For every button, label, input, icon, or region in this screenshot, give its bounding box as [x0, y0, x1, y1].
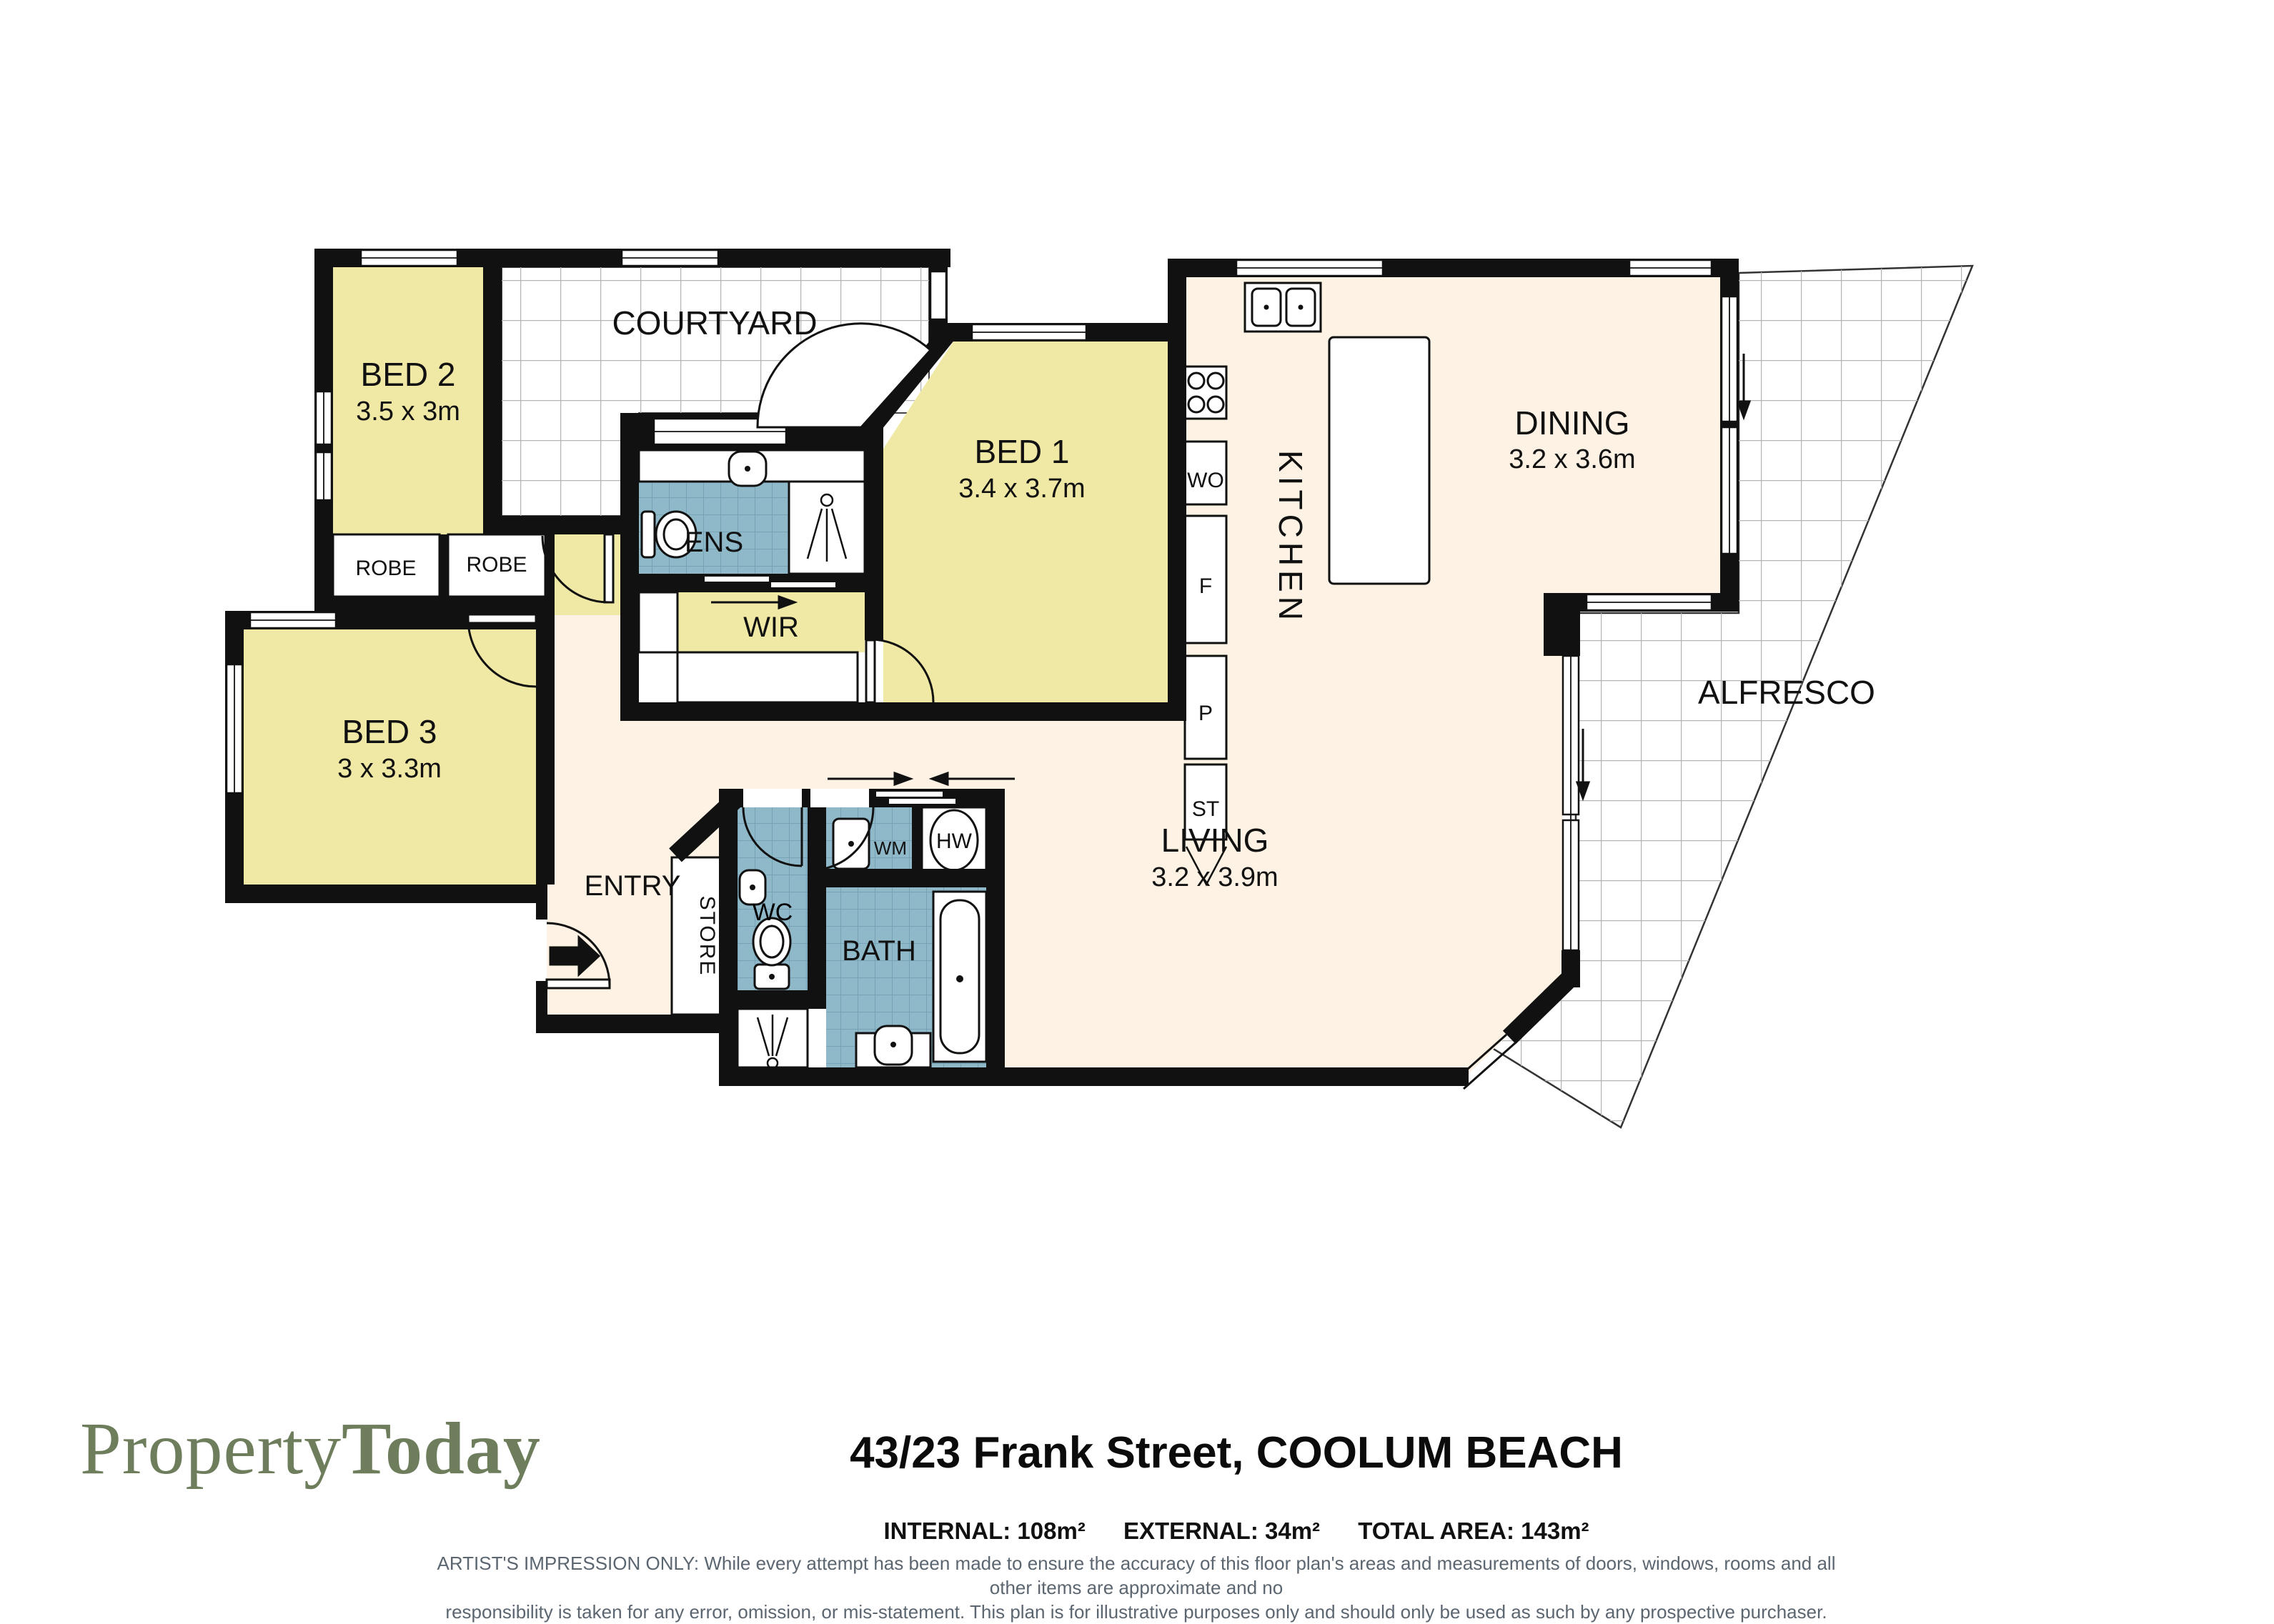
disclaimer-line1: ARTIST'S IMPRESSION ONLY: While every at… [436, 1552, 1837, 1600]
entry-door-leaf [547, 980, 610, 988]
bed3-dims: 3 x 3.3m [337, 754, 442, 784]
ens-slider-b [770, 582, 836, 588]
ens-label: ENS [685, 527, 743, 558]
brand-bold: Today [342, 1408, 541, 1490]
courtyard-right-window [930, 272, 946, 319]
robe2-label: ROBE [466, 553, 527, 577]
bed1-label: BED 1 [975, 433, 1070, 470]
dining-dims: 3.2 x 3.6m [1509, 444, 1635, 474]
wc-label: WC [753, 899, 793, 926]
st-label: ST [1192, 797, 1219, 821]
wir-label: WIR [743, 612, 799, 643]
area-internal: INTERNAL: 108m² [883, 1518, 1085, 1544]
bed1-dims: 3.4 x 3.7m [958, 474, 1085, 504]
dining-label: DINING [1515, 404, 1630, 442]
laundry-slider-b [888, 798, 956, 804]
bed3-label: BED 3 [342, 713, 437, 750]
wo-label: WO [1187, 469, 1224, 492]
wm-drain [848, 841, 854, 847]
hw-label: HW [936, 830, 973, 853]
robe1-label: ROBE [355, 557, 416, 580]
wir-robe-box [677, 652, 858, 702]
linen-box [639, 592, 677, 652]
bed3-door-leaf [468, 614, 536, 623]
brand-light: Property [80, 1408, 342, 1490]
p-label: P [1198, 702, 1213, 725]
disclaimer: ARTIST'S IMPRESSION ONLY: While every at… [436, 1552, 1837, 1624]
entry-label: ENTRY [585, 870, 681, 902]
area-total: TOTAL AREA: 143m² [1358, 1518, 1589, 1544]
area-summary: INTERNAL: 108m² EXTERNAL: 34m² TOTAL ARE… [715, 1518, 1758, 1545]
laundry-slider-a [875, 791, 943, 797]
wm-label: WM [874, 837, 907, 859]
bed2-dims: 3.5 x 3m [356, 397, 460, 427]
bath-label: BATH [842, 935, 916, 967]
property-address: 43/23 Frank Street, COOLUM BEACH [715, 1428, 1758, 1478]
bed2-door-leaf [605, 534, 613, 602]
floor-plan: COURTYARD BED 2 3.5 x 3m ROBE ROBE BED 3… [0, 0, 2274, 1608]
room-bed1 [883, 342, 1168, 702]
disclaimer-line2: responsibility is taken for any error, o… [436, 1600, 1837, 1624]
brand-logo: PropertyToday [80, 1406, 541, 1491]
f-label: F [1199, 574, 1212, 598]
store-label: STORE [695, 896, 719, 977]
kitchen-label: KITCHEN [1272, 450, 1309, 624]
living-dims: 3.2 x 3.9m [1151, 862, 1278, 892]
ens-toilet-icon [642, 512, 655, 557]
courtyard-label: COURTYARD [612, 304, 817, 342]
living-label: LIVING [1161, 822, 1269, 859]
alfresco-label: ALFRESCO [1698, 674, 1875, 711]
bed1-door-leaf [866, 640, 875, 702]
area-external: EXTERNAL: 34m² [1123, 1518, 1320, 1544]
kitchen-bench [1329, 337, 1429, 584]
bed2-label: BED 2 [361, 356, 456, 393]
ens-slider-a [704, 576, 770, 582]
